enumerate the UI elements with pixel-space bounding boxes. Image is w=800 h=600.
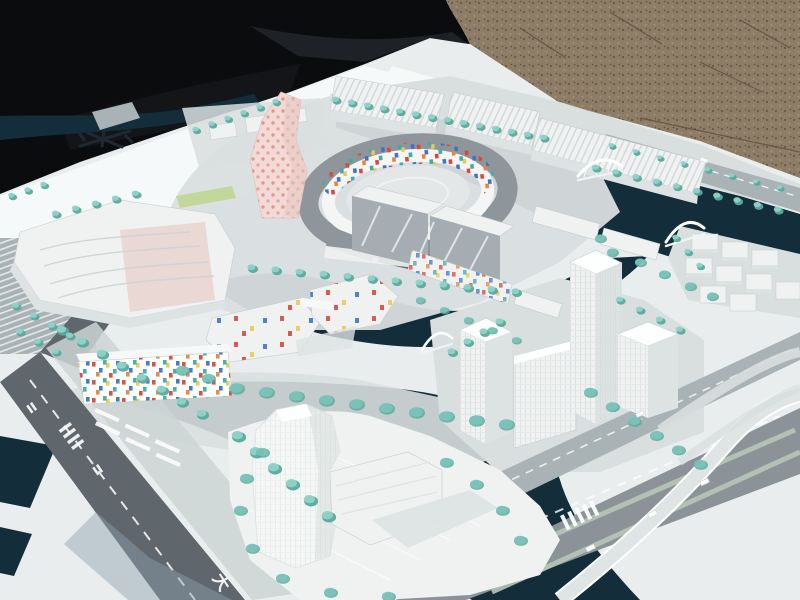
model-tree	[428, 114, 435, 119]
model-tree	[511, 288, 519, 294]
model-tree	[672, 235, 678, 240]
model-tree	[289, 391, 303, 401]
model-tree	[657, 155, 663, 159]
model-tree	[256, 448, 268, 456]
model-tree	[636, 307, 643, 312]
model-tree	[157, 386, 167, 393]
model-tree	[57, 326, 67, 333]
model-tree	[208, 121, 214, 126]
model-tree	[681, 161, 687, 165]
model-tree	[192, 127, 198, 132]
model-tree	[30, 313, 37, 318]
model-tree	[12, 303, 19, 308]
model-tree	[476, 123, 483, 128]
model-tree	[616, 297, 623, 302]
model-tree	[343, 273, 351, 279]
slab-b1b	[514, 340, 576, 448]
model-tree	[694, 460, 706, 468]
model-tree	[380, 105, 387, 110]
model-tree	[117, 362, 127, 369]
model-tree	[72, 206, 79, 211]
model-tree	[635, 258, 645, 265]
model-tree	[415, 279, 423, 285]
model-tree	[268, 463, 279, 471]
model-tree	[479, 328, 487, 334]
model-tree	[234, 506, 246, 514]
model-tree	[396, 108, 403, 113]
model-tree	[487, 286, 495, 292]
model-tree	[444, 117, 451, 122]
model-tree	[40, 182, 46, 187]
model-tree	[379, 403, 393, 413]
model-tree	[8, 193, 14, 198]
model-tree	[77, 338, 87, 345]
model-tree	[754, 202, 761, 207]
model-tree	[633, 149, 639, 153]
model-tree	[137, 374, 147, 381]
model-tree	[66, 333, 73, 338]
model-tree	[272, 99, 278, 104]
model-tree	[673, 183, 680, 188]
model-tree	[440, 458, 452, 466]
model-tree	[524, 132, 531, 137]
model-tree	[34, 339, 41, 344]
model-tree	[612, 169, 619, 174]
model-tree	[259, 387, 273, 397]
model-photo-canvas: 大	[0, 0, 800, 600]
model-tree	[202, 374, 214, 382]
model-tree	[607, 248, 617, 255]
model-tree	[240, 474, 252, 482]
model-tree	[463, 338, 471, 344]
model-tree	[382, 592, 394, 600]
model-tree	[324, 588, 336, 596]
model-tree	[672, 445, 684, 453]
model-tree	[439, 282, 447, 288]
model-tree	[684, 249, 690, 254]
model-tree	[595, 234, 605, 241]
model-tree	[696, 263, 702, 268]
model-tree	[304, 495, 315, 503]
model-tree	[332, 97, 339, 102]
model-tree	[705, 167, 711, 171]
model-tree	[322, 511, 333, 519]
model-tree	[271, 266, 279, 272]
model-tree	[659, 270, 669, 277]
model-tree	[276, 574, 288, 582]
model-tree	[197, 410, 207, 417]
model-tree	[753, 179, 759, 183]
model-tree	[412, 111, 419, 116]
model-tree	[470, 480, 482, 488]
model-tree	[295, 269, 303, 275]
model-tree	[632, 174, 639, 179]
model-tree	[391, 277, 399, 283]
model-tree	[650, 431, 662, 439]
model-tree	[439, 411, 453, 421]
model-tree	[132, 191, 139, 196]
model-tree	[496, 506, 508, 514]
model-tree	[52, 211, 59, 216]
model-tree	[176, 366, 188, 374]
model-tree	[592, 165, 599, 170]
model-tree	[349, 399, 363, 409]
photo-architectural-model: 大	[0, 0, 800, 600]
model-tree	[177, 398, 187, 405]
model-tree	[367, 275, 375, 281]
model-tree	[499, 419, 513, 429]
model-tree	[319, 271, 327, 277]
model-tree	[229, 383, 243, 393]
model-tree	[48, 323, 55, 328]
model-tree	[409, 407, 423, 417]
model-tree	[693, 188, 700, 193]
model-tree	[540, 135, 547, 140]
model-tree	[676, 327, 683, 332]
model-tree	[713, 193, 720, 198]
model-tree	[447, 348, 455, 354]
model-tree	[584, 388, 596, 396]
model-tree	[240, 110, 246, 115]
model-tree	[364, 102, 371, 107]
model-tree	[514, 536, 526, 544]
model-tree	[247, 264, 255, 270]
model-tree	[729, 173, 735, 177]
model-tree	[440, 307, 449, 313]
model-tree	[464, 317, 473, 323]
model-tree	[112, 196, 119, 201]
model-tree	[469, 415, 483, 425]
model-tree	[685, 282, 695, 289]
model-tree	[52, 349, 59, 354]
model-tree	[733, 197, 740, 202]
model-tree	[652, 179, 659, 184]
model-tree	[488, 327, 497, 333]
model-tree	[97, 350, 107, 357]
model-tree	[606, 402, 618, 410]
model-tree	[224, 116, 230, 121]
model-tree	[92, 201, 99, 206]
model-tree	[495, 318, 503, 324]
slab-b2	[618, 322, 678, 418]
model-tree	[460, 120, 467, 125]
model-tree	[319, 395, 333, 405]
model-tree	[609, 143, 615, 147]
model-tree	[16, 329, 23, 334]
model-tree	[777, 185, 783, 189]
model-tree	[246, 544, 258, 552]
tower-t1-tall	[570, 250, 622, 424]
model-tree	[492, 126, 499, 131]
model-tree	[508, 129, 515, 134]
model-tree	[463, 284, 471, 290]
model-tree	[774, 207, 781, 212]
model-tree	[348, 99, 355, 104]
model-tree	[628, 417, 640, 425]
model-tree	[512, 337, 521, 343]
model-tree	[416, 297, 425, 303]
model-tree	[24, 187, 30, 192]
model-tree	[707, 292, 717, 299]
model-tree	[286, 479, 297, 487]
model-tree	[656, 317, 663, 322]
model-tree	[256, 104, 262, 109]
model-tree	[232, 431, 243, 439]
